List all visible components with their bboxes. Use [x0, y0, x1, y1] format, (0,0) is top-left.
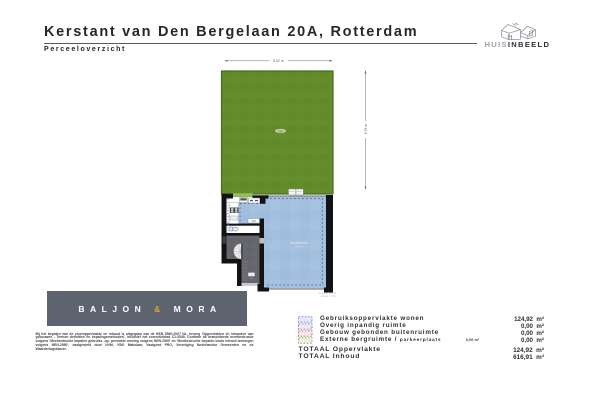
svg-text:tuin: tuin	[278, 129, 284, 133]
svg-text:48,2 m²: 48,2 m²	[294, 245, 304, 249]
svg-text:schaal 1:100: schaal 1:100	[320, 294, 336, 298]
svg-text:8,02 m: 8,02 m	[273, 59, 284, 63]
svg-text:8,76 m: 8,76 m	[364, 124, 368, 135]
svg-text:600: 600	[252, 219, 257, 223]
